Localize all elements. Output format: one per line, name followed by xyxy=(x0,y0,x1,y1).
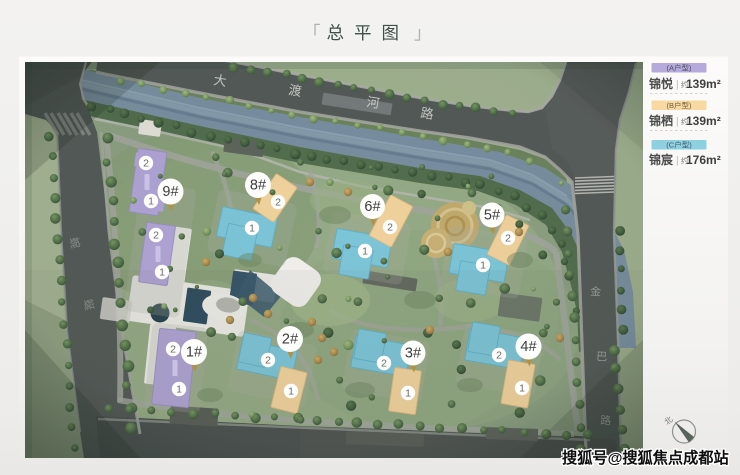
svg-text:1: 1 xyxy=(362,245,368,257)
svg-text:2: 2 xyxy=(265,354,271,366)
svg-text:锦宸: 锦宸 xyxy=(649,152,674,167)
svg-text:(C户型): (C户型) xyxy=(666,140,692,150)
svg-text:2: 2 xyxy=(381,357,387,369)
svg-text:2: 2 xyxy=(275,196,281,208)
svg-text:(B户型): (B户型) xyxy=(667,100,692,110)
svg-text:139m²: 139m² xyxy=(686,77,721,91)
svg-text:2: 2 xyxy=(153,229,159,241)
svg-text:搜狐号@搜狐焦点成都站: 搜狐号@搜狐焦点成都站 xyxy=(562,449,729,467)
svg-text:|: | xyxy=(676,156,679,167)
svg-text:1#: 1# xyxy=(186,345,202,361)
svg-text:2#: 2# xyxy=(282,332,298,348)
svg-text:(A户型): (A户型) xyxy=(667,63,692,73)
svg-text:1: 1 xyxy=(405,387,411,399)
svg-text:|: | xyxy=(676,117,679,128)
svg-text:1: 1 xyxy=(480,259,486,271)
svg-text:6#: 6# xyxy=(364,199,380,215)
svg-text:139m²: 139m² xyxy=(686,114,721,128)
svg-text:2: 2 xyxy=(496,349,502,361)
svg-text:8#: 8# xyxy=(250,178,266,194)
svg-text:3#: 3# xyxy=(405,346,421,362)
svg-text:2: 2 xyxy=(143,157,149,169)
svg-text:4#: 4# xyxy=(520,339,536,355)
svg-text:1: 1 xyxy=(249,222,255,234)
svg-text:|: | xyxy=(676,80,679,91)
svg-text:2: 2 xyxy=(387,221,393,233)
svg-text:1: 1 xyxy=(176,383,182,395)
svg-text:1: 1 xyxy=(148,195,154,207)
svg-text:1: 1 xyxy=(519,382,525,394)
svg-text:1: 1 xyxy=(288,385,294,397)
svg-text:2: 2 xyxy=(505,232,511,244)
svg-text:锦栖: 锦栖 xyxy=(649,113,673,128)
svg-text:5#: 5# xyxy=(484,208,500,224)
svg-text:1: 1 xyxy=(159,266,165,278)
svg-text:2: 2 xyxy=(170,343,176,355)
svg-text:176m²: 176m² xyxy=(686,153,721,167)
svg-text:锦悦: 锦悦 xyxy=(649,76,673,91)
svg-text:9#: 9# xyxy=(162,184,178,200)
